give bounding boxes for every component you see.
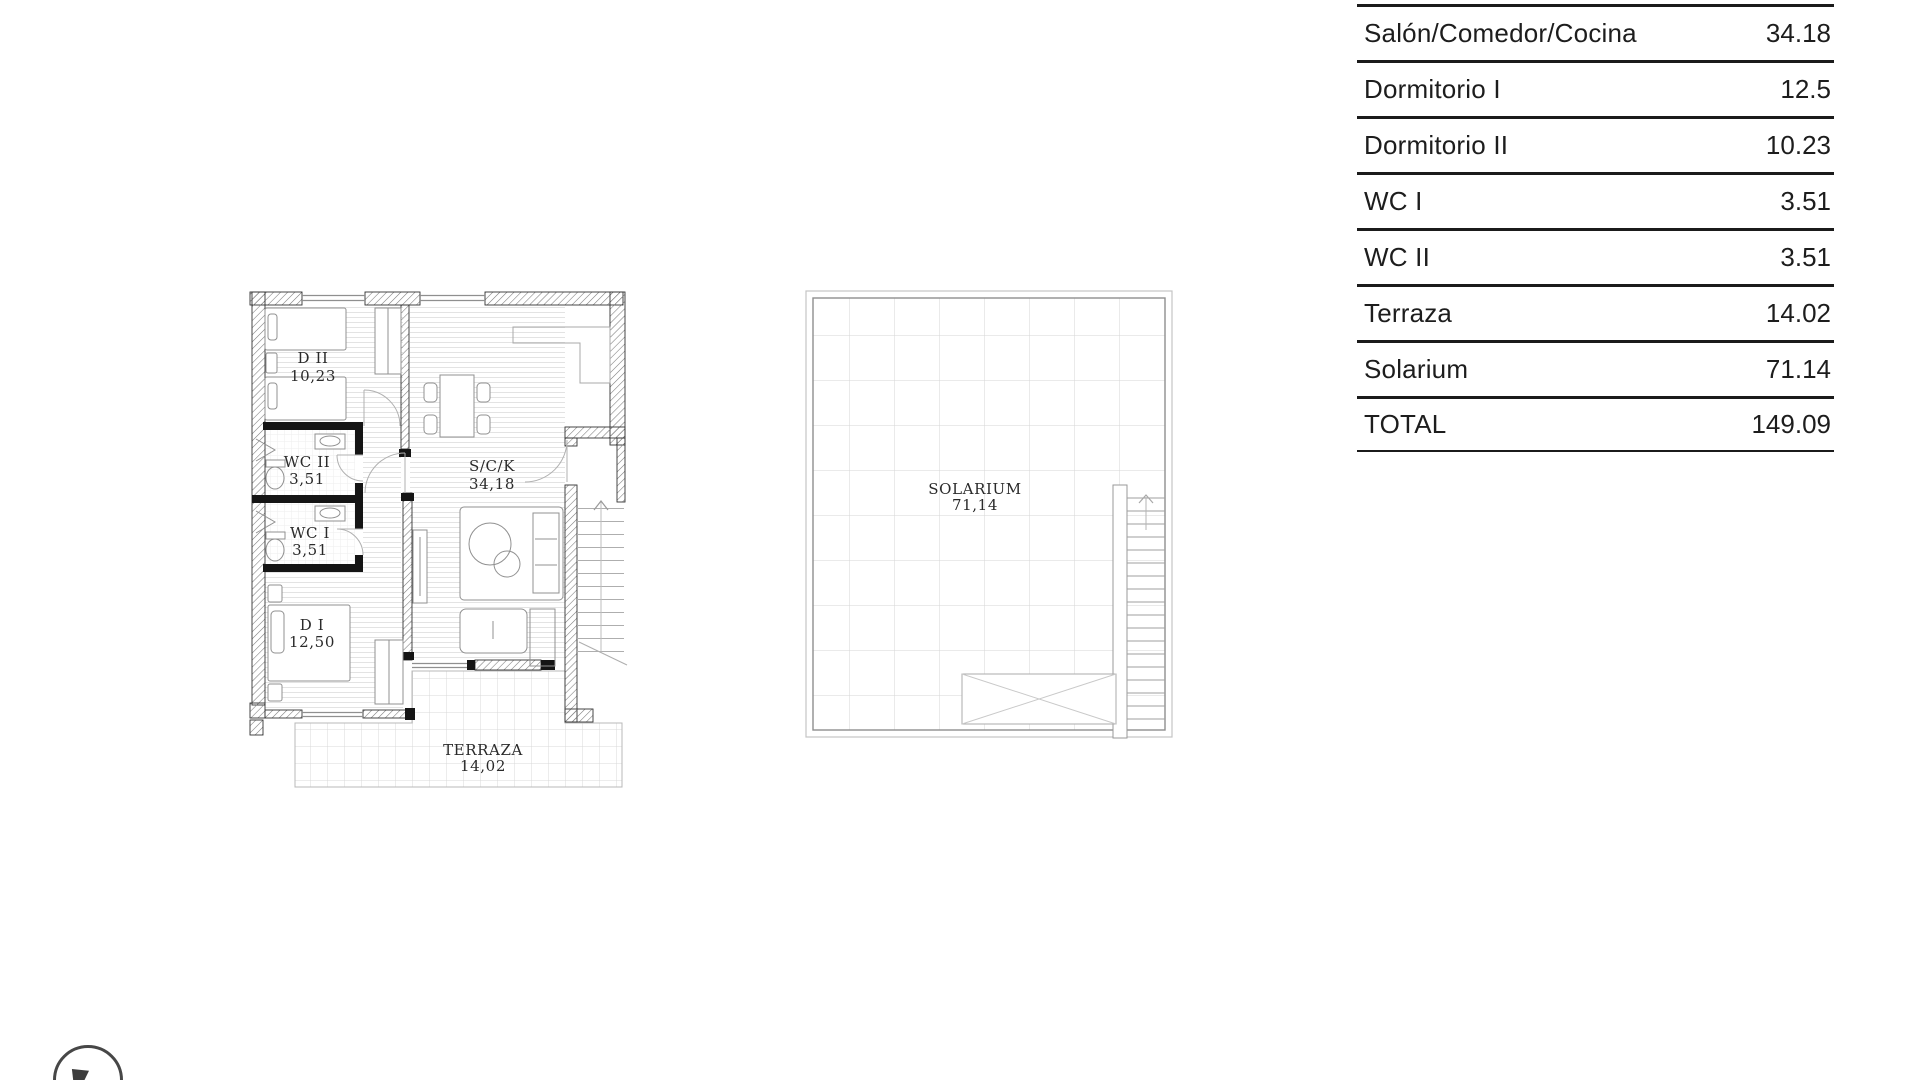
page: D II 10,23 WC II 3,51 WC I 3,51 D I 12,5… — [0, 0, 1920, 1080]
room-label-wc2: WC II — [284, 453, 331, 471]
room-label: Dormitorio II — [1357, 130, 1508, 161]
solarium-floor — [813, 298, 1165, 730]
table-row: TOTAL 149.09 — [1357, 396, 1834, 452]
stairs-exterior — [577, 501, 627, 665]
floorplan-solarium: SOLARIUM 71,14 — [805, 290, 1175, 740]
room-label: Solarium — [1357, 354, 1468, 385]
room-label: WC II — [1357, 242, 1430, 273]
room-area-d2: 10,23 — [290, 367, 336, 385]
north-arrow-wedge — [70, 1069, 89, 1080]
table-row: Dormitorio II 10.23 — [1357, 116, 1834, 172]
table-row: Salón/Comedor/Cocina 34.18 — [1357, 4, 1834, 60]
room-label: Dormitorio I — [1357, 74, 1501, 105]
room-area-solarium: 71,14 — [952, 496, 998, 514]
room-area-value: 12.5 — [1780, 74, 1834, 105]
table-row: WC I 3.51 — [1357, 172, 1834, 228]
room-area-value: 10.23 — [1766, 130, 1834, 161]
room-area-value: 149.09 — [1751, 409, 1834, 440]
room-area-d1: 12,50 — [289, 633, 335, 651]
table-row: Terraza 14.02 — [1357, 284, 1834, 340]
room-label-d1: D I — [300, 616, 325, 634]
stair-void — [962, 674, 1116, 724]
room-area-value: 3.51 — [1780, 242, 1834, 273]
room-area-value: 71.14 — [1766, 354, 1834, 385]
table-row: WC II 3.51 — [1357, 228, 1834, 284]
room-label-wc1: WC I — [290, 524, 330, 542]
room-area-sck: 34,18 — [469, 475, 515, 493]
room-label-sck: S/C/K — [469, 457, 515, 475]
room-label: TOTAL — [1357, 409, 1446, 440]
room-area-wc1: 3,51 — [292, 541, 328, 559]
room-area-value: 34.18 — [1766, 18, 1834, 49]
room-label: Salón/Comedor/Cocina — [1357, 18, 1637, 49]
area-table: Salón/Comedor/Cocina 34.18 Dormitorio I … — [1357, 4, 1834, 452]
north-arrow-icon — [53, 1045, 123, 1080]
room-area-value: 14.02 — [1766, 298, 1834, 329]
room-area-terraza: 14,02 — [460, 757, 506, 775]
room-label: WC I — [1357, 186, 1423, 217]
room-area-value: 3.51 — [1780, 186, 1834, 217]
table-row: Dormitorio I 12.5 — [1357, 60, 1834, 116]
floorplan-ground: D II 10,23 WC II 3,51 WC I 3,51 D I 12,5… — [243, 287, 638, 807]
room-label: Terraza — [1357, 298, 1452, 329]
room-label-d2: D II — [297, 349, 328, 367]
table-row: Solarium 71.14 — [1357, 340, 1834, 396]
room-area-wc2: 3,51 — [289, 470, 325, 488]
